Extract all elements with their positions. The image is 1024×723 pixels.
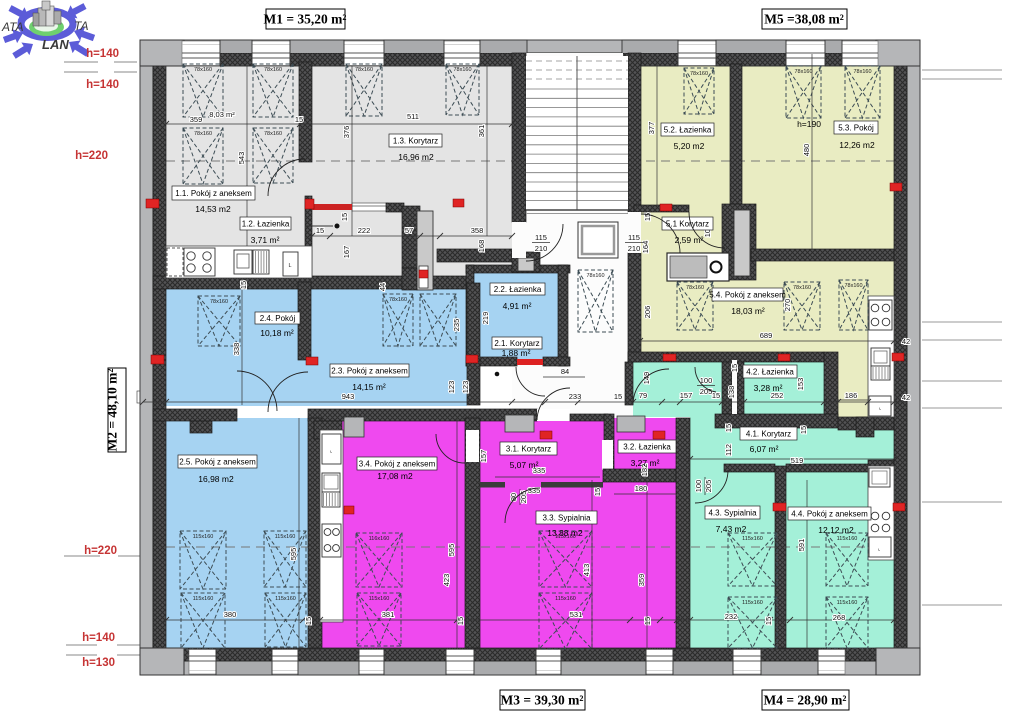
svg-text:180: 180 (635, 484, 648, 493)
svg-text:LAN: LAN (42, 37, 69, 52)
svg-text:115: 115 (535, 233, 547, 242)
svg-text:M2 = 48,10 m²: M2 = 48,10 m² (105, 369, 120, 452)
svg-text:15: 15 (643, 617, 652, 625)
svg-text:149: 149 (642, 372, 651, 385)
svg-text:205: 205 (519, 491, 528, 504)
svg-text:12,12 m2: 12,12 m2 (818, 525, 854, 535)
svg-text:5,20 m2: 5,20 m2 (674, 141, 705, 151)
svg-text:3.4. Pokój z aneksem: 3.4. Pokój z aneksem (359, 459, 436, 468)
svg-text:157: 157 (680, 391, 693, 400)
svg-text:376: 376 (342, 126, 351, 139)
svg-text:5.1 Korytarz: 5.1 Korytarz (666, 219, 709, 228)
svg-text:15: 15 (593, 488, 602, 496)
svg-text:210: 210 (628, 244, 641, 253)
svg-text:210: 210 (535, 244, 548, 253)
svg-text:79: 79 (639, 391, 647, 400)
svg-text:222: 222 (358, 226, 371, 235)
svg-text:3,28 m²: 3,28 m² (754, 383, 783, 393)
svg-text:M3 = 39,30 m²: M3 = 39,30 m² (501, 693, 584, 708)
svg-text:10,18 m²: 10,18 m² (260, 328, 294, 338)
svg-text:⌞: ⌞ (879, 405, 882, 411)
svg-text:480: 480 (802, 144, 811, 157)
svg-text:4.4. Pokój z aneksem: 4.4. Pokój z aneksem (791, 509, 868, 518)
svg-text:4,91 m²: 4,91 m² (503, 301, 532, 311)
svg-text:78x160: 78x160 (586, 273, 604, 279)
svg-text:44: 44 (378, 283, 387, 291)
svg-text:2.4. Pokój: 2.4. Pokój (260, 314, 296, 323)
svg-text:M4 = 28,90 m²: M4 = 28,90 m² (764, 693, 847, 708)
svg-text:595: 595 (289, 548, 298, 561)
svg-text:2.1. Korytarz: 2.1. Korytarz (494, 339, 539, 348)
svg-text:423: 423 (442, 574, 451, 587)
svg-text:78x160: 78x160 (844, 283, 862, 289)
svg-text:78x160: 78x160 (690, 71, 708, 77)
svg-text:115x160: 115x160 (275, 596, 296, 602)
svg-text:591: 591 (797, 539, 806, 552)
svg-text:3,71 m²: 3,71 m² (251, 235, 280, 245)
svg-text:6,07 m²: 6,07 m² (750, 444, 779, 454)
svg-text:338: 338 (232, 343, 241, 356)
svg-text:78x160: 78x160 (355, 67, 373, 73)
svg-text:123: 123 (461, 381, 470, 394)
svg-text:377: 377 (647, 122, 656, 135)
svg-text:h=130: h=130 (82, 657, 115, 669)
svg-text:h=190: h=190 (797, 119, 821, 129)
svg-text:42: 42 (902, 337, 910, 346)
svg-text:5.4. Pokój z aneksem: 5.4. Pokój z aneksem (709, 290, 786, 299)
svg-text:15: 15 (614, 392, 622, 401)
svg-text:3.2. Łazienka: 3.2. Łazienka (623, 442, 671, 451)
svg-text:115: 115 (628, 233, 640, 242)
svg-text:153: 153 (796, 378, 805, 391)
svg-text:8,03 m²: 8,03 m² (209, 110, 235, 119)
svg-text:18,03 m²: 18,03 m² (731, 306, 765, 316)
svg-text:205: 205 (704, 480, 713, 493)
svg-text:13,88 m2: 13,88 m2 (547, 528, 583, 538)
svg-text:78x160: 78x160 (194, 67, 212, 73)
svg-text:⌞: ⌞ (878, 546, 881, 552)
svg-text:1.3. Korytarz: 1.3. Korytarz (393, 136, 438, 145)
svg-text:15: 15 (724, 424, 733, 432)
svg-text:235: 235 (452, 319, 461, 332)
svg-text:595: 595 (447, 544, 456, 557)
svg-text:943: 943 (342, 392, 355, 401)
svg-text:2.2. Łazienka: 2.2. Łazienka (494, 285, 542, 294)
svg-text:689: 689 (760, 331, 773, 340)
svg-text:543: 543 (237, 152, 246, 165)
svg-text:115x160: 115x160 (369, 596, 390, 602)
svg-text:3.3. Sypialnia: 3.3. Sypialnia (542, 513, 591, 522)
svg-text:15: 15 (340, 213, 349, 221)
svg-text:42: 42 (902, 393, 910, 402)
svg-text:h=140: h=140 (82, 632, 115, 644)
svg-text:15: 15 (799, 426, 808, 434)
svg-text:h=140: h=140 (86, 48, 119, 60)
svg-text:115x160: 115x160 (275, 534, 296, 540)
svg-text:⌞: ⌞ (330, 448, 333, 454)
svg-text:7,43 m2: 7,43 m2 (716, 524, 747, 534)
svg-text:531: 531 (570, 610, 583, 619)
svg-text:15: 15 (764, 617, 773, 625)
svg-text:h=140: h=140 (86, 79, 119, 91)
svg-text:5.3. Pokój: 5.3. Pokój (838, 123, 874, 132)
svg-text:M5 =38,08 m²: M5 =38,08 m² (764, 12, 844, 27)
svg-text:78x160: 78x160 (210, 299, 228, 305)
svg-text:16,98 m2: 16,98 m2 (198, 474, 234, 484)
svg-text:1.2. Łazienka: 1.2. Łazienka (242, 219, 290, 228)
svg-text:1,88 m²: 1,88 m² (502, 348, 531, 358)
svg-text:115x160: 115x160 (193, 534, 214, 540)
svg-text:78x160: 78x160 (453, 67, 471, 73)
svg-text:168: 168 (477, 240, 486, 253)
svg-text:h=220: h=220 (75, 150, 108, 162)
svg-text:3.1. Korytarz: 3.1. Korytarz (506, 444, 551, 453)
svg-text:14,53 m2: 14,53 m2 (195, 204, 231, 214)
svg-text:4.1. Korytarz: 4.1. Korytarz (746, 429, 791, 438)
svg-text:15: 15 (712, 391, 720, 400)
svg-text:167: 167 (342, 246, 351, 259)
svg-text:L: L (288, 263, 291, 269)
svg-text:115x160: 115x160 (193, 596, 214, 602)
svg-text:519: 519 (791, 456, 804, 465)
svg-text:186: 186 (845, 391, 858, 400)
svg-text:115x160: 115x160 (742, 600, 763, 606)
svg-text:115x160: 115x160 (837, 536, 858, 542)
svg-text:3,27 m²: 3,27 m² (631, 458, 660, 468)
svg-text:15: 15 (304, 617, 313, 625)
svg-text:270: 270 (783, 299, 792, 312)
svg-text:TA: TA (74, 19, 88, 33)
svg-text:5,07 m²: 5,07 m² (510, 460, 539, 470)
svg-text:115x160: 115x160 (555, 596, 576, 602)
svg-text:380: 380 (224, 610, 237, 619)
svg-text:123: 123 (447, 381, 456, 394)
svg-text:2.3. Pokój z aneksem: 2.3. Pokój z aneksem (331, 366, 408, 375)
svg-text:100: 100 (694, 480, 703, 493)
svg-text:381: 381 (382, 610, 395, 619)
svg-text:4.3. Sypialnia: 4.3. Sypialnia (708, 508, 757, 517)
svg-text:15: 15 (730, 364, 739, 372)
svg-text:78x160: 78x160 (793, 285, 811, 291)
svg-text:232: 232 (725, 612, 738, 621)
svg-text:206: 206 (643, 306, 652, 319)
svg-text:268: 268 (833, 613, 846, 622)
svg-text:359: 359 (190, 115, 203, 124)
svg-text:511: 511 (407, 112, 419, 121)
svg-text:219: 219 (481, 312, 490, 325)
svg-text:12,26 m2: 12,26 m2 (839, 140, 875, 150)
svg-text:15: 15 (239, 281, 248, 289)
svg-text:115x160: 115x160 (837, 600, 858, 606)
svg-text:112: 112 (724, 444, 733, 456)
svg-text:5.2. Łazienka: 5.2. Łazienka (664, 125, 712, 134)
svg-text:15: 15 (316, 226, 324, 235)
svg-text:116x160: 116x160 (369, 536, 390, 542)
svg-text:M1 = 35,20 m²: M1 = 35,20 m² (264, 12, 347, 27)
svg-text:138: 138 (727, 386, 736, 399)
svg-text:84: 84 (561, 367, 569, 376)
svg-text:17,08 m2: 17,08 m2 (377, 471, 413, 481)
svg-text:ATA: ATA (1, 20, 24, 34)
svg-text:78x160: 78x160 (853, 69, 871, 75)
svg-text:16,96 m2: 16,96 m2 (398, 152, 434, 162)
svg-text:1.1. Pokój z aneksem: 1.1. Pokój z aneksem (175, 189, 252, 198)
svg-text:359: 359 (637, 574, 646, 587)
svg-text:78x160: 78x160 (264, 67, 282, 73)
svg-text:15: 15 (295, 115, 303, 124)
svg-text:14,15 m²: 14,15 m² (352, 382, 386, 392)
svg-text:57: 57 (405, 226, 413, 235)
svg-text:2.5. Pokój z aneksem: 2.5. Pokój z aneksem (179, 457, 256, 466)
svg-text:h=220: h=220 (84, 545, 117, 557)
svg-text:78x160: 78x160 (264, 131, 282, 137)
svg-text:335: 335 (528, 486, 541, 495)
svg-text:157: 157 (479, 450, 488, 463)
svg-text:361: 361 (477, 125, 486, 138)
svg-text:78x160: 78x160 (794, 69, 812, 75)
svg-text:413: 413 (582, 564, 591, 577)
svg-text:358: 358 (471, 226, 484, 235)
svg-text:78x160: 78x160 (389, 297, 407, 303)
svg-text:115x160: 115x160 (742, 536, 763, 542)
svg-text:78x160: 78x160 (194, 131, 212, 137)
svg-text:78x160: 78x160 (686, 285, 704, 291)
svg-text:4.2. Łazienka: 4.2. Łazienka (746, 367, 794, 376)
svg-text:233: 233 (569, 392, 582, 401)
